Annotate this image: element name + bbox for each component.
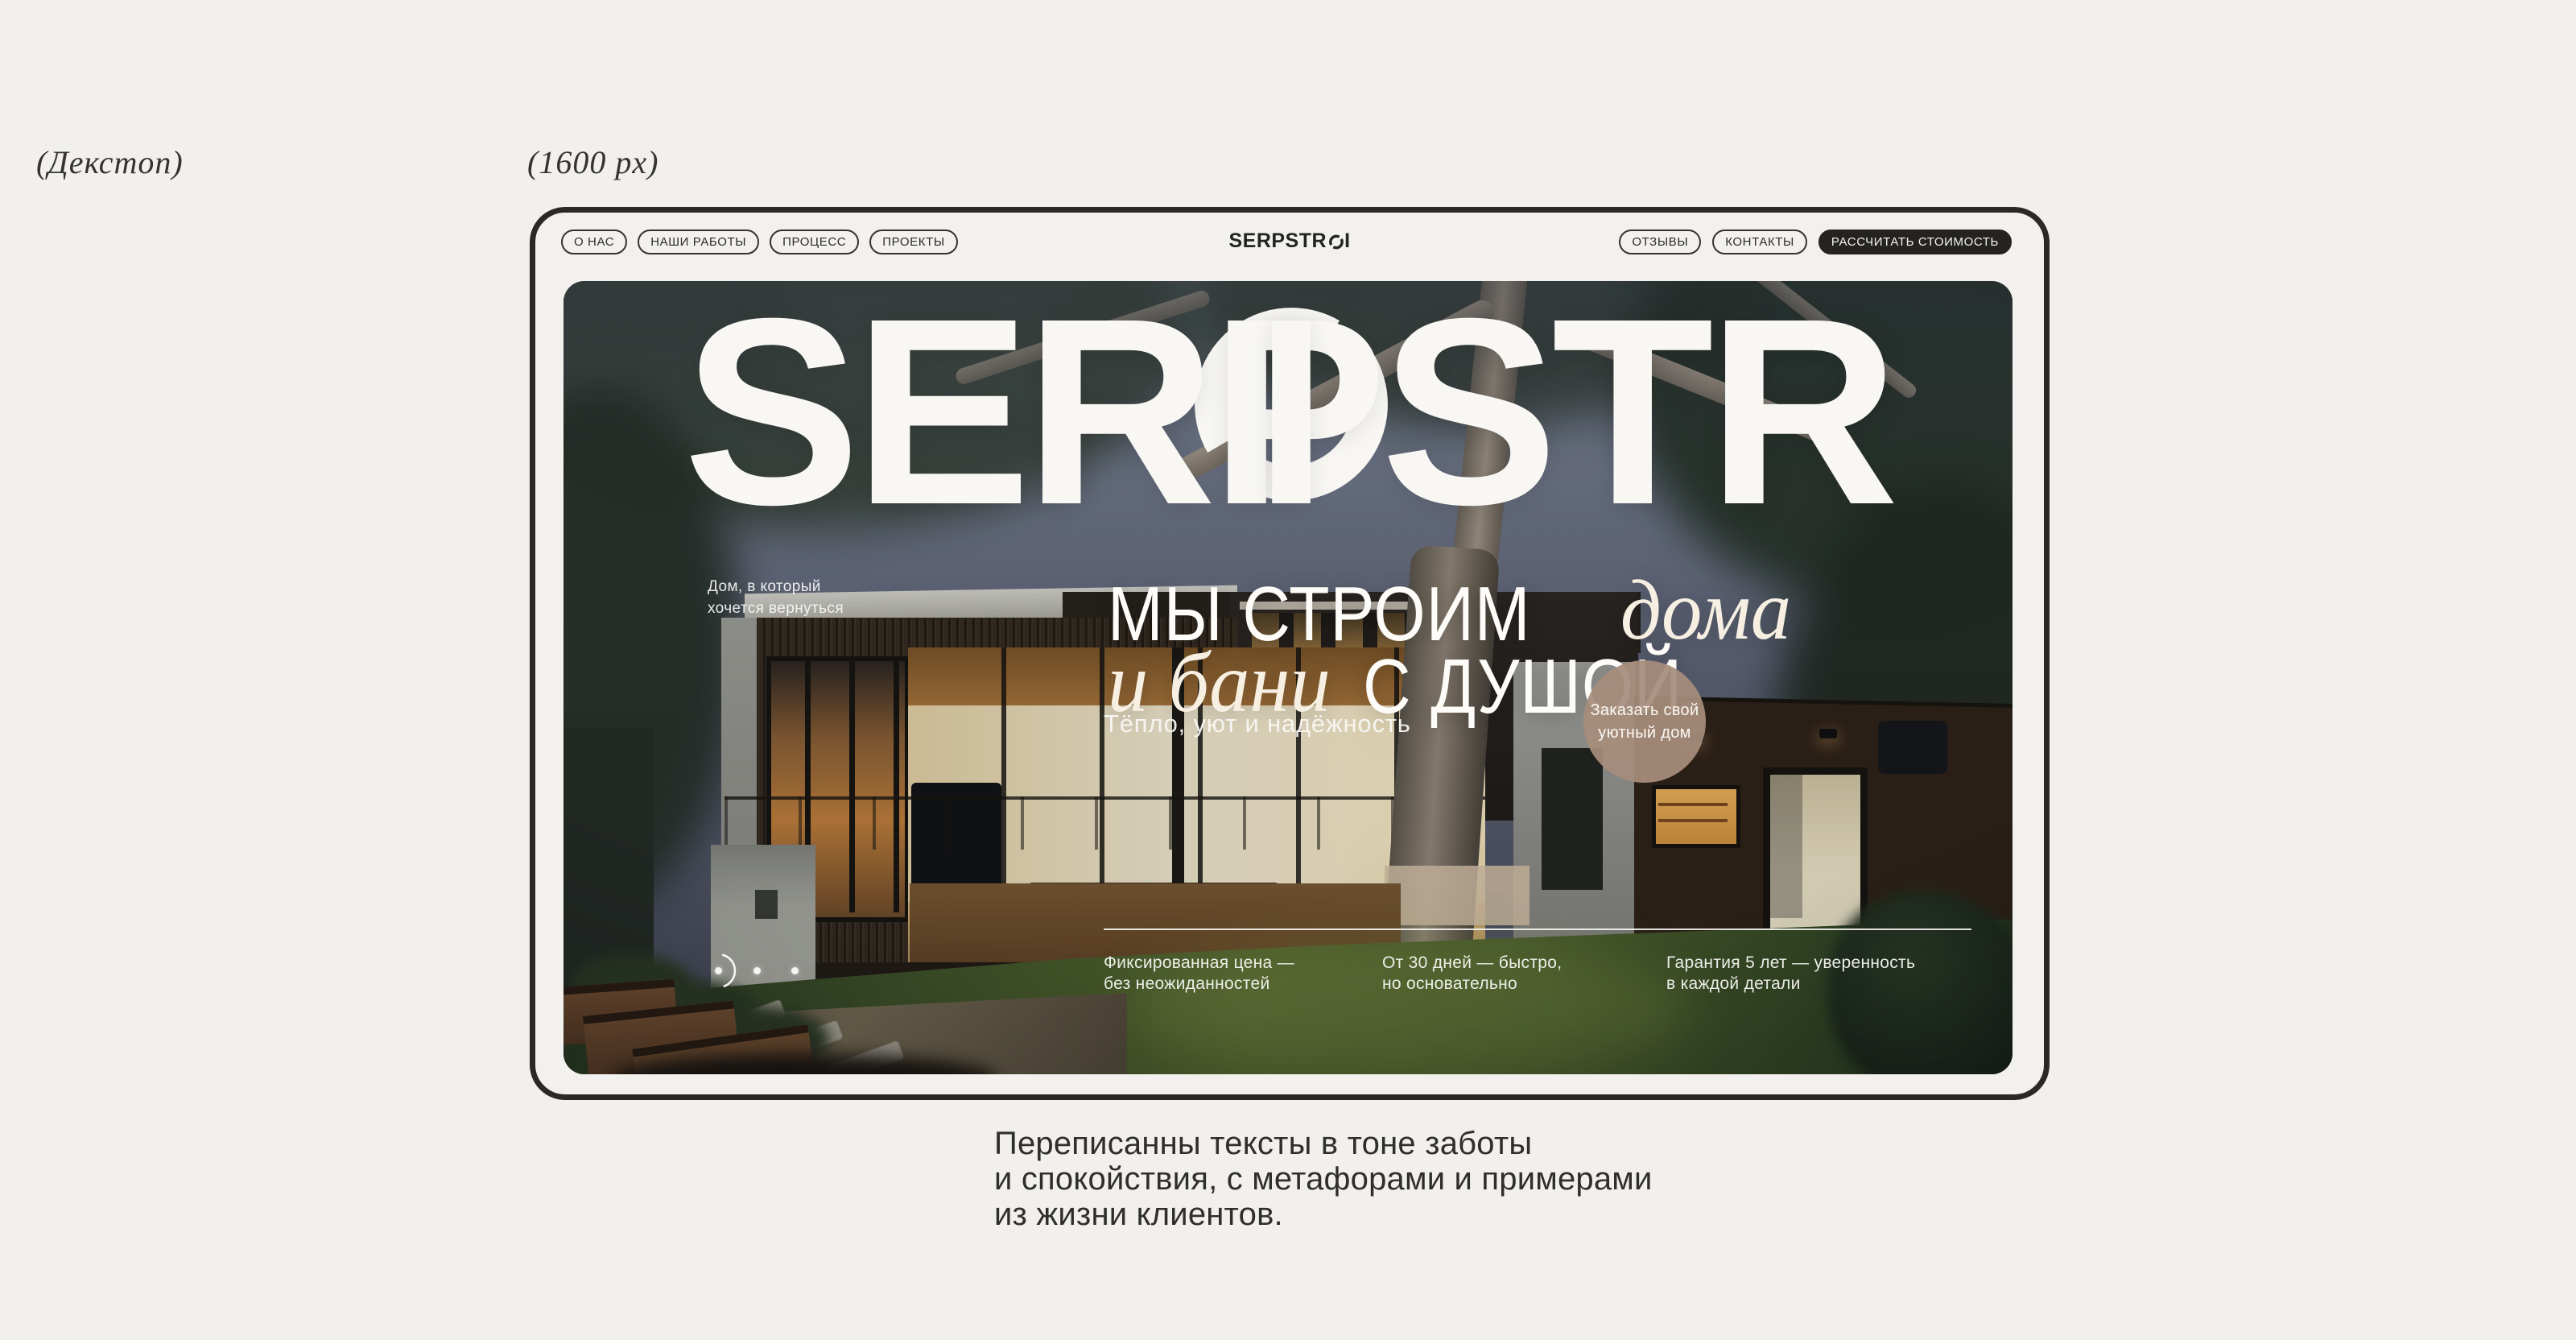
- nav-item-about[interactable]: О НАС: [561, 230, 627, 254]
- site-header: О НАС НАШИ РАБОТЫ ПРОЦЕСС ПРОЕКТЫ SERPST…: [535, 230, 2044, 255]
- feature-fixed-price: Фиксированная цена — без неожиданностей: [1104, 953, 1382, 995]
- nav-item-reviews[interactable]: ОТЗЫВЫ: [1619, 230, 1701, 254]
- caption-line3: из жизни клиентов.: [994, 1197, 1653, 1232]
- order-home-circle-button[interactable]: Заказать свой уютный дом: [1583, 660, 1706, 783]
- browser-frame: О НАС НАШИ РАБОТЫ ПРОЦЕСС ПРОЕКТЫ SERPST…: [530, 207, 2050, 1100]
- hero-tagline-line2: хочется вернуться: [708, 598, 844, 619]
- carousel-dot-2[interactable]: [753, 967, 761, 974]
- feature-line: От 30 дней — быстро,: [1382, 953, 1666, 974]
- site-logo-text-pre: SERPSTR: [1228, 231, 1327, 251]
- hero-title: SERPSTR I: [563, 310, 2013, 513]
- annotation-device-label: (Декстоп): [36, 143, 184, 181]
- carousel-dot-3[interactable]: [791, 967, 799, 974]
- feature-line: Гарантия 5 лет — уверенность: [1666, 953, 1971, 974]
- hero-carousel-dots: [700, 953, 829, 988]
- site-logo-text-post: I: [1344, 231, 1350, 251]
- nav-item-contacts[interactable]: КОНТАКТЫ: [1712, 230, 1807, 254]
- hero-subline: Тёпло, уют и надёжность: [1104, 709, 1411, 738]
- carousel-dot-1[interactable]: [715, 967, 722, 974]
- features-divider: [1104, 928, 1971, 930]
- nav-right-group: ОТЗЫВЫ КОНТАКТЫ РАССЧИТАТЬ СТОИМОСТЬ: [1619, 230, 2012, 254]
- caption-line2: и спокойствия, с метафорами и примерами: [994, 1161, 1653, 1197]
- calculate-cost-button[interactable]: РАССЧИТАТЬ СТОИМОСТЬ: [1818, 230, 2012, 254]
- nav-item-works[interactable]: НАШИ РАБОТЫ: [638, 230, 759, 254]
- hero-title-text-post: I: [1254, 310, 1322, 513]
- feature-line: Фиксированная цена —: [1104, 953, 1382, 974]
- feature-30-days: От 30 дней — быстро, но основательно: [1382, 953, 1666, 995]
- hero-tagline: Дом, в который хочется вернуться: [708, 576, 844, 619]
- nav-left-group: О НАС НАШИ РАБОТЫ ПРОЦЕСС ПРОЕКТЫ: [561, 230, 958, 254]
- nav-item-process[interactable]: ПРОЦЕСС: [770, 230, 859, 254]
- nav-item-projects[interactable]: ПРОЕКТЫ: [869, 230, 958, 254]
- design-caption: Переписанны тексты в тоне заботы и споко…: [994, 1126, 1653, 1232]
- hero-section: SERPSTR I Дом, в который хочется вернуть…: [563, 281, 2013, 1074]
- feature-line: без неожиданностей: [1104, 974, 1382, 995]
- feature-line: но основательно: [1382, 974, 1666, 995]
- annotation-width-label: (1600 px): [527, 143, 658, 181]
- site-logo[interactable]: SERPSTR I: [1228, 231, 1350, 251]
- feature-warranty: Гарантия 5 лет — уверенность в каждой де…: [1666, 953, 1971, 995]
- circle-button-line1: Заказать свой: [1591, 699, 1699, 722]
- caption-line1: Переписанны тексты в тоне заботы: [994, 1126, 1653, 1161]
- circle-button-line2: уютный дом: [1598, 722, 1690, 744]
- logo-stencil-o-icon: [1328, 234, 1344, 250]
- feature-line: в каждой детали: [1666, 974, 1971, 995]
- features-row: Фиксированная цена — без неожиданностей …: [1104, 953, 1971, 995]
- hero-tagline-line1: Дом, в который: [708, 576, 844, 598]
